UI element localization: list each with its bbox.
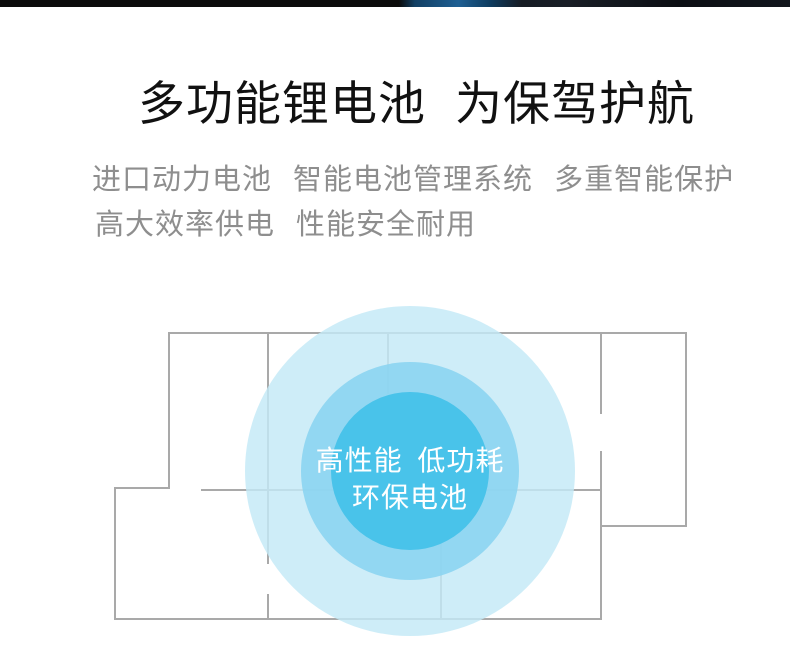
top-image-strip (0, 0, 790, 7)
section-title: 多功能锂电池 为保驾护航 (138, 78, 695, 130)
circle-label-line-2: 环保电池 (352, 482, 468, 513)
product-detail-section: 多功能锂电池 为保驾护航 进口动力电池 智能电池管理系统 多重智能保护 高大效率… (0, 0, 790, 655)
subtitle-line-2: 高大效率供电 性能安全耐用 (92, 203, 734, 248)
section-subtitle: 进口动力电池 智能电池管理系统 多重智能保护 高大效率供电 性能安全耐用 (92, 158, 734, 248)
circle-label-line-1: 高性能 低功耗 (316, 445, 505, 476)
floorplan-diagram: 高性能 低功耗 环保电池 (0, 300, 790, 655)
subtitle-line-1: 进口动力电池 智能电池管理系统 多重智能保护 (92, 158, 734, 203)
